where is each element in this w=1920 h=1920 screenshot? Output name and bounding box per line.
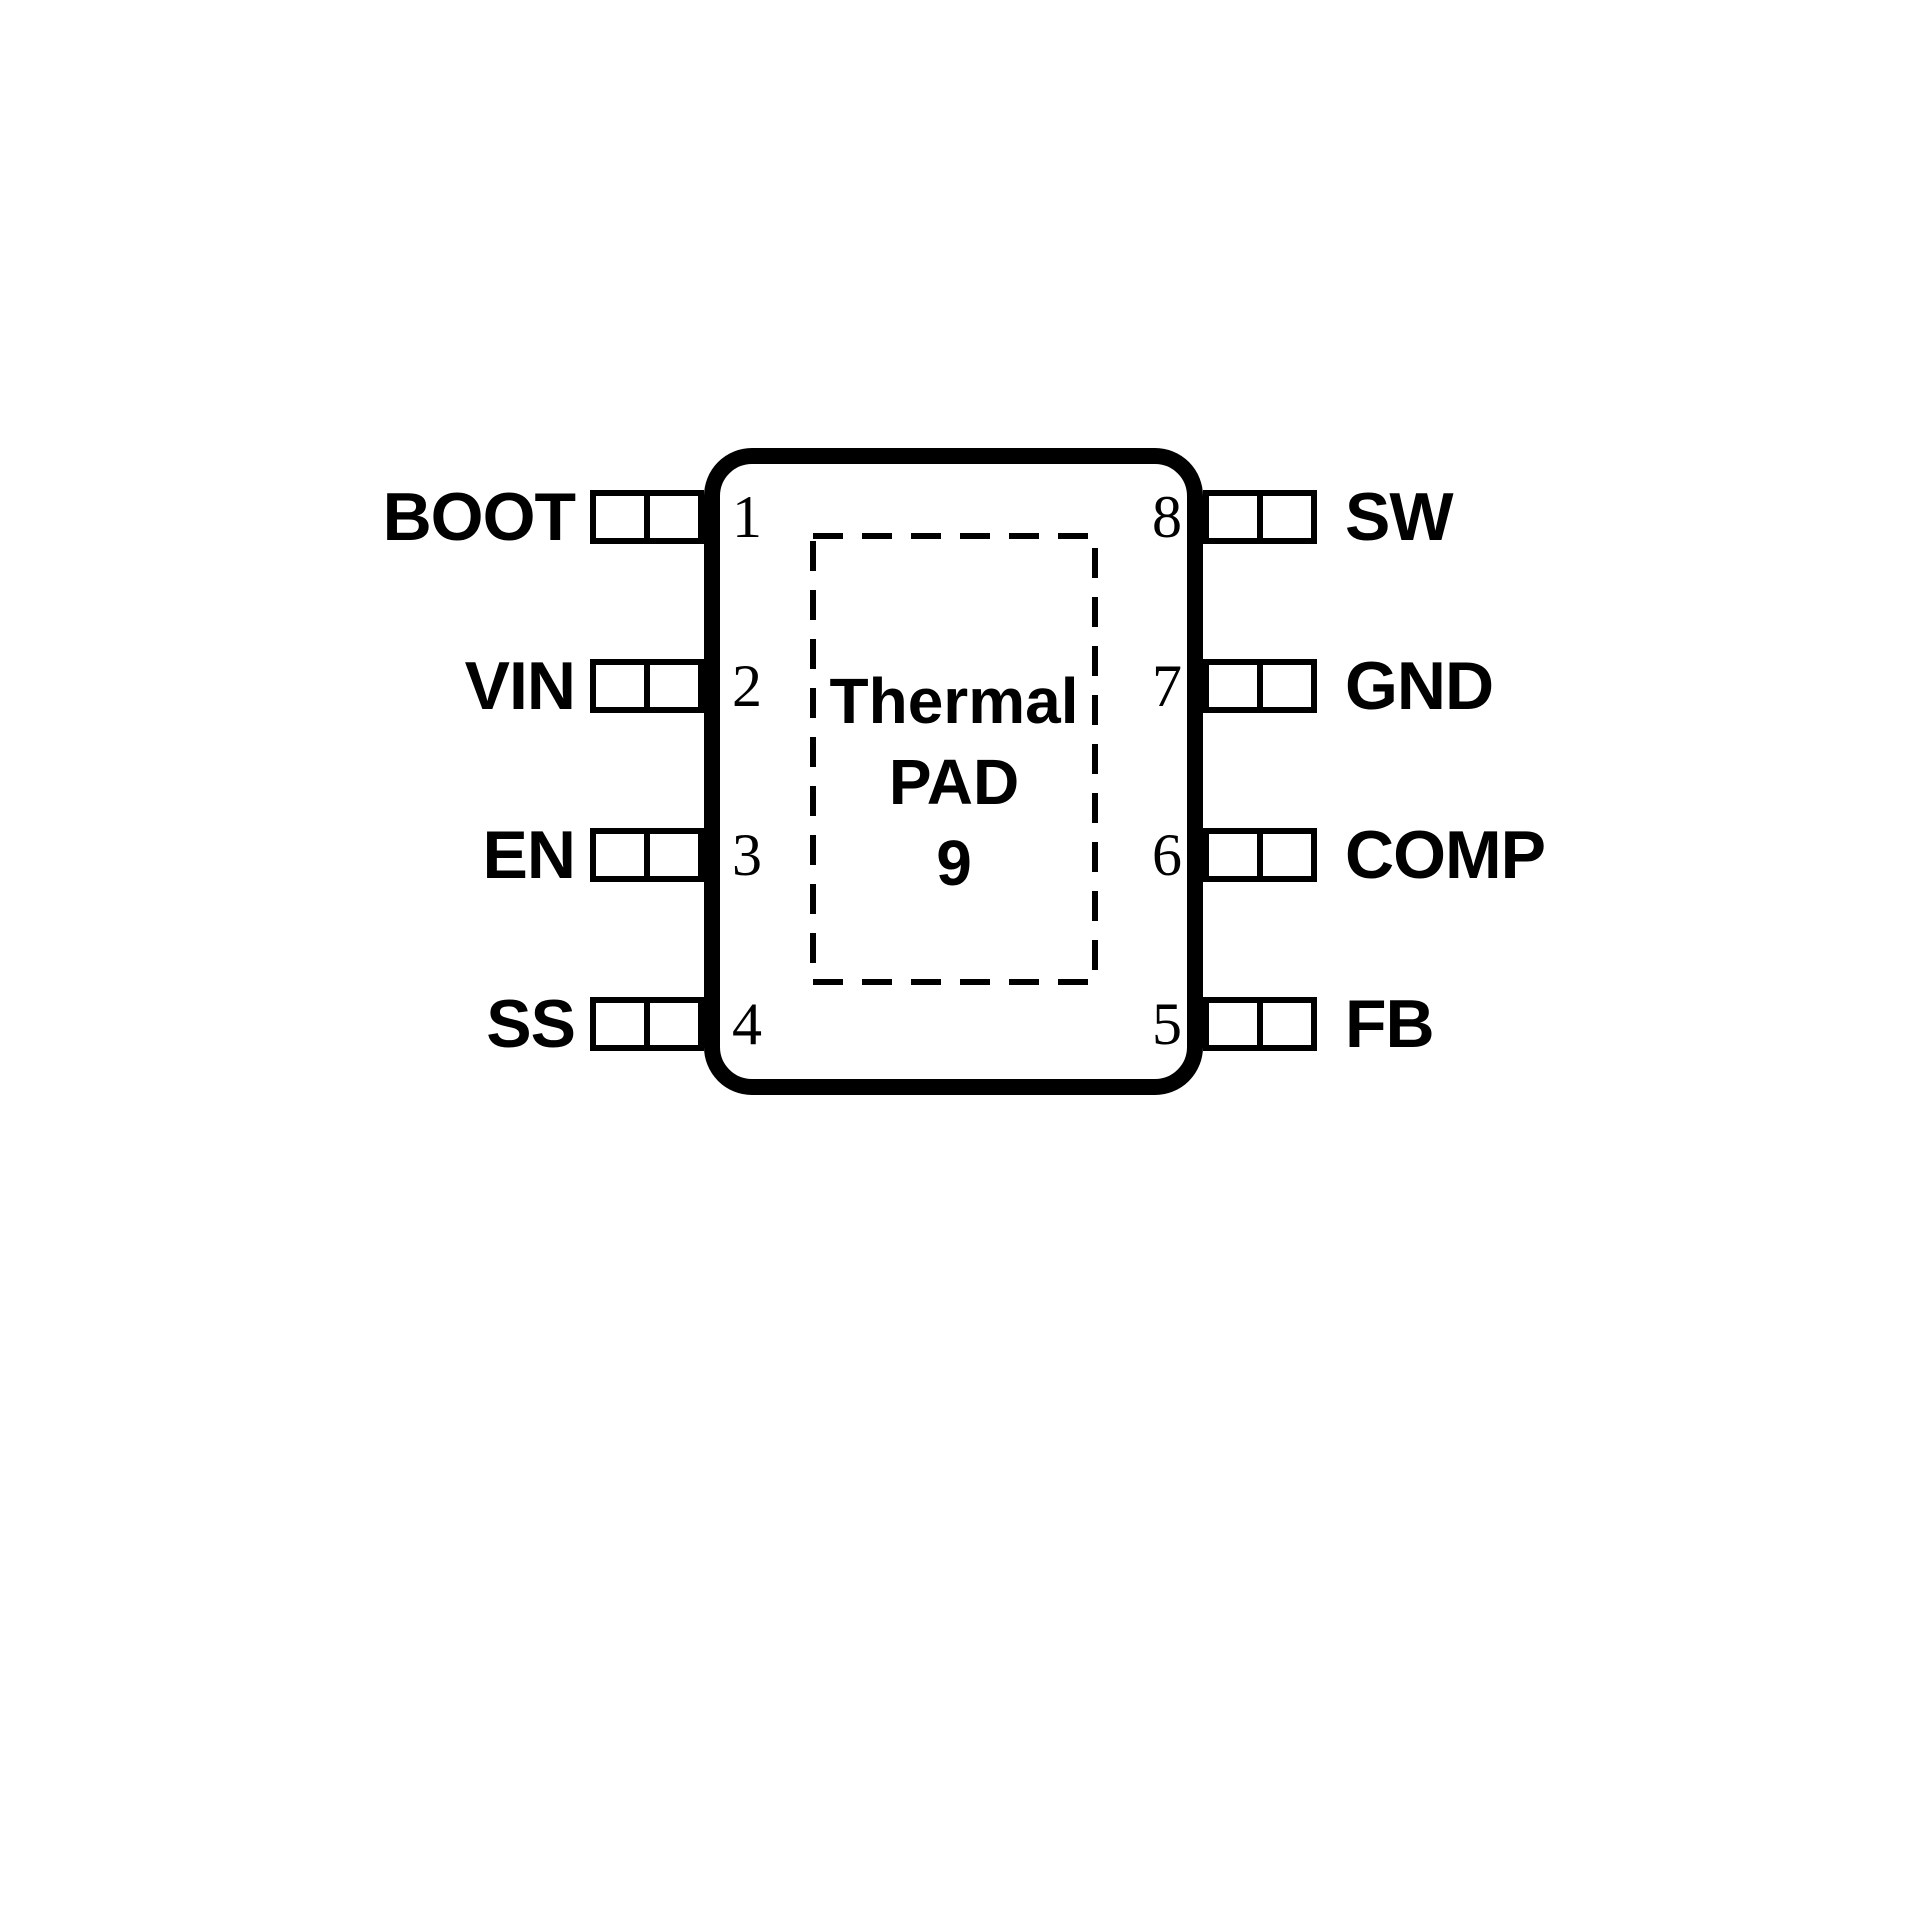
pin-pad-sw [1203, 490, 1317, 544]
pin-number-2: 2 [707, 650, 787, 722]
pin-number-1: 1 [707, 481, 787, 553]
pin-pad-gnd [1203, 659, 1317, 713]
pin-pad-ss [590, 997, 704, 1051]
pin-pad-vin [590, 659, 704, 713]
pin-label-ss: SS [230, 988, 575, 1060]
pin-label-vin: VIN [230, 650, 575, 722]
pin-number-3: 3 [707, 819, 787, 891]
pin-cell-divider [644, 1003, 650, 1045]
pin-cell-divider [644, 496, 650, 538]
pin-pad-comp [1203, 828, 1317, 882]
pin-label-comp: COMP [1345, 819, 1765, 891]
pin-number-4: 4 [707, 988, 787, 1060]
pin-cell-divider [644, 665, 650, 707]
thermal-pad-number: 9 [810, 823, 1098, 904]
pin-pad-boot [590, 490, 704, 544]
pin-cell-divider [644, 834, 650, 876]
thermal-pad-label-line2: PAD [810, 742, 1098, 823]
pin-cell-divider [1257, 496, 1263, 538]
pinout-diagram: Thermal PAD 9 BOOT 1 VIN 2 EN 3 SS 4 8 S… [0, 0, 1920, 1920]
pin-label-boot: BOOT [230, 481, 575, 553]
pin-label-sw: SW [1345, 481, 1765, 553]
pin-label-fb: FB [1345, 988, 1765, 1060]
pin-pad-fb [1203, 997, 1317, 1051]
pin-number-8: 8 [1127, 481, 1207, 553]
pin-number-5: 5 [1127, 988, 1207, 1060]
thermal-pad-label: Thermal PAD 9 [810, 661, 1098, 904]
pin-number-7: 7 [1127, 650, 1207, 722]
pin-pad-en [590, 828, 704, 882]
pin-cell-divider [1257, 834, 1263, 876]
pin-cell-divider [1257, 1003, 1263, 1045]
pin-number-6: 6 [1127, 819, 1207, 891]
pin-cell-divider [1257, 665, 1263, 707]
pin-label-gnd: GND [1345, 650, 1765, 722]
thermal-pad-label-line1: Thermal [810, 661, 1098, 742]
pin-label-en: EN [230, 819, 575, 891]
